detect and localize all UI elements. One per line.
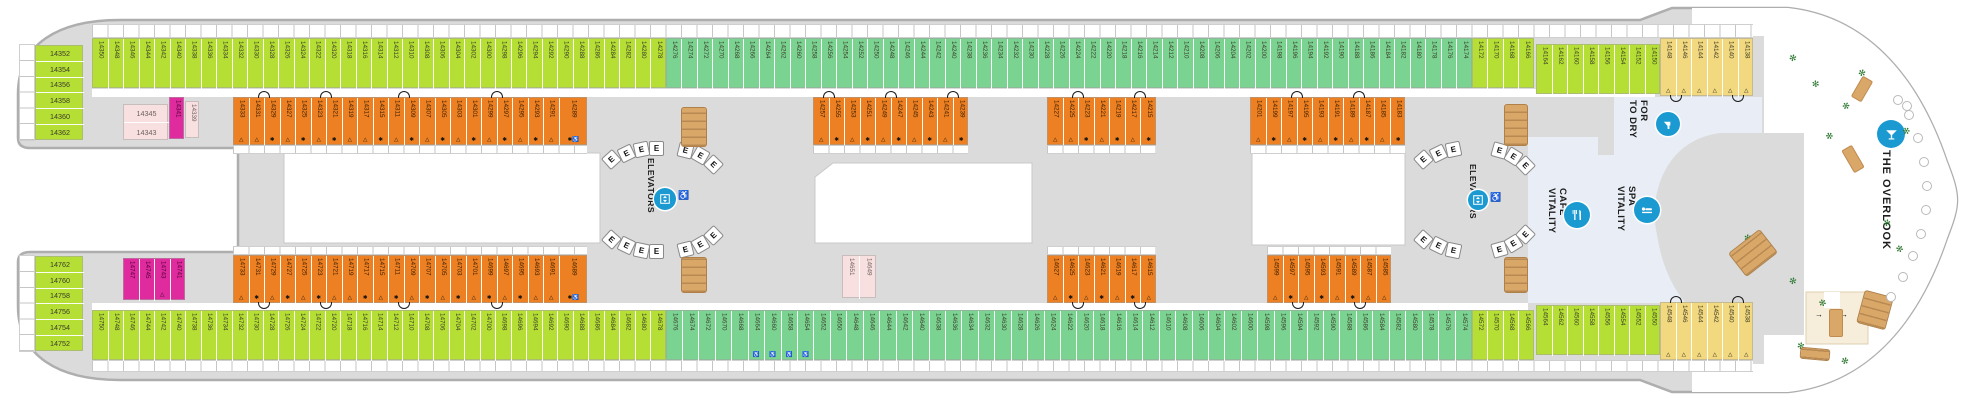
- cabin-14698[interactable]: 14698: [496, 311, 512, 361]
- cabin-14156[interactable]: 14156: [1599, 45, 1615, 95]
- cabin-14344[interactable]: 14344: [140, 39, 156, 89]
- cabin-14166[interactable]: 14166: [1519, 39, 1535, 89]
- cabin-14743[interactable]: 14743△: [155, 259, 171, 301]
- cabin-14326[interactable]: 14326: [279, 39, 295, 89]
- cabin-14286[interactable]: 14286: [589, 39, 605, 89]
- cabin-14193[interactable]: 14193△: [1313, 98, 1329, 146]
- cabin-14306[interactable]: 14306: [434, 39, 450, 89]
- cabin-14182[interactable]: 14182: [1395, 39, 1411, 89]
- cabin-14218[interactable]: 14218: [1116, 39, 1132, 89]
- cabin-14314[interactable]: 14314: [372, 39, 388, 89]
- stairs[interactable]: [681, 107, 707, 147]
- cabin-14732[interactable]: 14732: [233, 311, 249, 361]
- cabin-14268[interactable]: 14268: [729, 39, 745, 89]
- cabin-14254[interactable]: 14254: [837, 39, 853, 89]
- cabin-14350[interactable]: 14350: [93, 39, 109, 89]
- elevator-box[interactable]: E: [649, 244, 664, 259]
- cabin-14554[interactable]: 14554: [1615, 306, 1631, 356]
- cabin-14220[interactable]: 14220: [1101, 39, 1117, 89]
- cabin-14228[interactable]: 14228: [1039, 39, 1055, 89]
- cabin-14630[interactable]: 14630: [995, 311, 1011, 361]
- cabin-14158[interactable]: 14158: [1584, 45, 1600, 95]
- cabin-14234[interactable]: 14234: [992, 39, 1008, 89]
- cabin-14738[interactable]: 14738: [186, 311, 202, 361]
- cabin-14680[interactable]: 14680: [636, 311, 652, 361]
- stairs[interactable]: [1504, 257, 1528, 293]
- cabin-14724[interactable]: 14724: [295, 311, 311, 361]
- cabin-14245[interactable]: 14245△: [907, 98, 923, 146]
- cabin-14568[interactable]: 14568: [1504, 311, 1520, 361]
- cabin-14638[interactable]: 14638: [930, 311, 946, 361]
- cabin-14298[interactable]: 14298: [496, 39, 512, 89]
- cabin-14634[interactable]: 14634: [962, 311, 978, 361]
- cabin-14172[interactable]: 14172: [1473, 39, 1489, 89]
- cabin-14336[interactable]: 14336: [202, 39, 218, 89]
- cabin-14348[interactable]: 14348: [109, 39, 125, 89]
- cabin-14674[interactable]: 14674: [683, 311, 699, 361]
- elevator-box[interactable]: E: [633, 242, 651, 260]
- cabin-14280[interactable]: 14280: [636, 39, 652, 89]
- elevator-box[interactable]: E: [633, 141, 651, 159]
- cabin-14682[interactable]: 14682: [620, 311, 636, 361]
- cabin-14695[interactable]: 14695✱: [513, 256, 529, 304]
- cabin-14538[interactable]: 14538△: [1739, 303, 1755, 361]
- cabin-14296[interactable]: 14296: [512, 39, 528, 89]
- cabin-14636[interactable]: 14636: [946, 311, 962, 361]
- cabin-14705[interactable]: 14705△: [436, 256, 452, 304]
- cabin-14305[interactable]: 14305✱: [436, 98, 452, 146]
- cabin-14192[interactable]: 14192: [1318, 39, 1334, 89]
- cabin-14190[interactable]: 14190: [1333, 39, 1349, 89]
- cabin-14658[interactable]: 14658♿: [782, 311, 798, 361]
- vitality-spa-label[interactable]: VITALITY SPA: [1615, 186, 1636, 256]
- cabin-14194[interactable]: 14194: [1302, 39, 1318, 89]
- cabin-14266[interactable]: 14266: [744, 39, 760, 89]
- cabin-14688[interactable]: 14688: [574, 311, 590, 361]
- cabin-14701[interactable]: 14701△: [467, 256, 483, 304]
- cabin-14570[interactable]: 14570: [1488, 311, 1504, 361]
- cabin-14556[interactable]: 14556: [1599, 306, 1615, 356]
- cabin-14696[interactable]: 14696: [512, 311, 528, 361]
- cabin-14748[interactable]: 14748: [109, 311, 125, 361]
- cabin-14692[interactable]: 14692: [543, 311, 559, 361]
- cabin-14150[interactable]: 14150: [1646, 45, 1662, 95]
- cabin-14616[interactable]: 14616: [1110, 311, 1126, 361]
- cabin-14723[interactable]: 14723✱: [312, 256, 328, 304]
- cabin-14187[interactable]: 14187✱: [1360, 98, 1376, 146]
- cabin-14640[interactable]: 14640: [913, 311, 929, 361]
- cabin-14689[interactable]: 14689✱♿: [560, 256, 588, 304]
- cabin-14566[interactable]: 14566: [1519, 311, 1535, 361]
- stairs[interactable]: [681, 257, 707, 293]
- cabin-14590[interactable]: 14590: [1324, 311, 1340, 361]
- cabin-14620[interactable]: 14620: [1077, 311, 1093, 361]
- cabin-14550[interactable]: 14550: [1646, 306, 1662, 356]
- cabin-14564[interactable]: 14564: [1537, 306, 1553, 356]
- cabin-14224[interactable]: 14224: [1070, 39, 1086, 89]
- cabin-14584[interactable]: 14584: [1373, 311, 1389, 361]
- cabin-14327[interactable]: 14327△: [281, 98, 297, 146]
- cabin-14264[interactable]: 14264: [760, 39, 776, 89]
- cabin-14760[interactable]: 14760: [36, 273, 84, 289]
- cabin-14621[interactable]: 14621✱: [1095, 256, 1111, 304]
- cabin-14700[interactable]: 14700: [481, 311, 497, 361]
- cabin-14614[interactable]: 14614: [1127, 311, 1143, 361]
- cabin-14330[interactable]: 14330: [248, 39, 264, 89]
- cabin-14184[interactable]: 14184: [1380, 39, 1396, 89]
- cabin-14226[interactable]: 14226: [1054, 39, 1070, 89]
- cabin-14315[interactable]: 14315✱: [374, 98, 390, 146]
- cabin-14707[interactable]: 14707✱: [420, 256, 436, 304]
- to-dry-for-label[interactable]: TO DRY FOR: [1627, 100, 1648, 164]
- cabin-14754[interactable]: 14754: [36, 320, 84, 336]
- cabin-14652[interactable]: 14652: [814, 311, 830, 361]
- cabin-14258[interactable]: 14258: [806, 39, 822, 89]
- cabin-14183[interactable]: 14183✱: [1391, 98, 1407, 146]
- cabin-14706[interactable]: 14706: [434, 311, 450, 361]
- cabin-14250[interactable]: 14250: [868, 39, 884, 89]
- cabin-14316[interactable]: 14316: [357, 39, 373, 89]
- cabin-14282[interactable]: 14282: [620, 39, 636, 89]
- cabin-14324[interactable]: 14324: [295, 39, 311, 89]
- cabin-14154[interactable]: 14154: [1615, 45, 1631, 95]
- cabin-14562[interactable]: 14562: [1553, 306, 1569, 356]
- cabin-14223[interactable]: 14223✱: [1079, 98, 1095, 146]
- cabin-14260[interactable]: 14260: [791, 39, 807, 89]
- cabin-14310[interactable]: 14310: [403, 39, 419, 89]
- cabin-14343[interactable]: 14343: [124, 123, 169, 141]
- cabin-14247[interactable]: 14247✱: [892, 98, 908, 146]
- cabin-14702[interactable]: 14702: [465, 311, 481, 361]
- cabin-14699[interactable]: 14699✱: [482, 256, 498, 304]
- cabin-14622[interactable]: 14622: [1061, 311, 1077, 361]
- cabin-14586[interactable]: 14586: [1357, 311, 1373, 361]
- cabin-14596[interactable]: 14596: [1275, 311, 1291, 361]
- cabin-14651[interactable]: 14651: [843, 256, 860, 299]
- cabin-14726[interactable]: 14726: [279, 311, 295, 361]
- cabin-14299[interactable]: 14299△: [482, 98, 498, 146]
- cabin-14585[interactable]: 14585△: [1377, 256, 1393, 304]
- cabin-14592[interactable]: 14592: [1308, 311, 1324, 361]
- cabin-14332[interactable]: 14332: [233, 39, 249, 89]
- cabin-14542[interactable]: 14542△: [1708, 303, 1724, 361]
- cabin-14546[interactable]: 14546△: [1677, 303, 1693, 361]
- cabin-14262[interactable]: 14262: [775, 39, 791, 89]
- cabin-14660[interactable]: 14660♿: [765, 311, 781, 361]
- cabin-14618[interactable]: 14618: [1094, 311, 1110, 361]
- cabin-14201[interactable]: 14201△: [1251, 98, 1267, 146]
- cabin-14248[interactable]: 14248: [884, 39, 900, 89]
- cabin-14747[interactable]: 14747: [124, 259, 140, 301]
- cabin-14719[interactable]: 14719△: [343, 256, 359, 304]
- cabin-14162[interactable]: 14162: [1553, 45, 1569, 95]
- cabin-14174[interactable]: 14174: [1457, 39, 1473, 89]
- cabin-14191[interactable]: 14191✱: [1329, 98, 1345, 146]
- cabin-14301[interactable]: 14301✱: [467, 98, 483, 146]
- cabin-14249[interactable]: 14249△: [876, 98, 892, 146]
- cabin-14142[interactable]: 14142△: [1708, 39, 1724, 97]
- cabin-14745[interactable]: 14745: [140, 259, 156, 301]
- cabin-14196[interactable]: 14196: [1287, 39, 1303, 89]
- cabin-14731[interactable]: 14731✱: [250, 256, 266, 304]
- cabin-14319[interactable]: 14319△: [343, 98, 359, 146]
- cabin-14225[interactable]: 14225△: [1064, 98, 1080, 146]
- cabin-14758[interactable]: 14758: [36, 289, 84, 305]
- cabin-14198[interactable]: 14198: [1271, 39, 1287, 89]
- cabin-14544[interactable]: 14544△: [1692, 303, 1708, 361]
- cabin-14274[interactable]: 14274: [682, 39, 698, 89]
- cabin-14712[interactable]: 14712: [388, 311, 404, 361]
- cabin-14588[interactable]: 14588: [1340, 311, 1356, 361]
- cabin-14168[interactable]: 14168: [1504, 39, 1520, 89]
- cabin-14668[interactable]: 14668: [732, 311, 748, 361]
- cabin-14140[interactable]: 14140△: [1723, 39, 1739, 97]
- cabin-14188[interactable]: 14188: [1349, 39, 1365, 89]
- cabin-14257[interactable]: 14257△: [814, 98, 830, 146]
- cabin-14164[interactable]: 14164: [1537, 45, 1553, 95]
- cabin-14597[interactable]: 14597✱: [1284, 256, 1300, 304]
- cabin-14670[interactable]: 14670: [716, 311, 732, 361]
- cabin-14646[interactable]: 14646: [864, 311, 880, 361]
- cabin-14180[interactable]: 14180: [1411, 39, 1427, 89]
- cabin-14626[interactable]: 14626: [1028, 311, 1044, 361]
- cabin-14721[interactable]: 14721△: [327, 256, 343, 304]
- cabin-14736[interactable]: 14736: [202, 311, 218, 361]
- cabin-14594[interactable]: 14594: [1291, 311, 1307, 361]
- cabin-14272[interactable]: 14272: [698, 39, 714, 89]
- cabin-14216[interactable]: 14216: [1132, 39, 1148, 89]
- cabin-14307[interactable]: 14307△: [420, 98, 436, 146]
- cabin-14752[interactable]: 14752: [36, 336, 84, 352]
- cabin-14742[interactable]: 14742: [155, 311, 171, 361]
- cabin-14222[interactable]: 14222: [1085, 39, 1101, 89]
- cabin-14321[interactable]: 14321✱: [327, 98, 343, 146]
- cabin-14725[interactable]: 14725△: [296, 256, 312, 304]
- cabin-14672[interactable]: 14672: [699, 311, 715, 361]
- cabin-14714[interactable]: 14714: [372, 311, 388, 361]
- cabin-14302[interactable]: 14302: [465, 39, 481, 89]
- cabin-14599[interactable]: 14599△: [1268, 256, 1284, 304]
- cabin-14360[interactable]: 14360: [36, 109, 84, 125]
- cabin-14715[interactable]: 14715△: [374, 256, 390, 304]
- cabin-14208[interactable]: 14208: [1194, 39, 1210, 89]
- cabin-14333[interactable]: 14333△: [234, 98, 250, 146]
- elevator-box[interactable]: E: [1445, 141, 1463, 159]
- cabin-14138[interactable]: 14138△: [1739, 39, 1755, 97]
- cabin-14625[interactable]: 14625✱: [1064, 256, 1080, 304]
- cabin-14354[interactable]: 14354: [36, 62, 84, 78]
- cabin-14345[interactable]: 14345: [124, 105, 169, 123]
- cabin-14720[interactable]: 14720: [326, 311, 342, 361]
- cabin-14252[interactable]: 14252: [853, 39, 869, 89]
- cabin-14251[interactable]: 14251✱: [861, 98, 877, 146]
- cabin-14710[interactable]: 14710: [403, 311, 419, 361]
- cabin-14323[interactable]: 14323△: [312, 98, 328, 146]
- cabin-14329[interactable]: 14329✱: [265, 98, 281, 146]
- cabin-14236[interactable]: 14236: [977, 39, 993, 89]
- cabin-14604[interactable]: 14604: [1209, 311, 1225, 361]
- cabin-14221[interactable]: 14221△: [1095, 98, 1111, 146]
- cabin-14716[interactable]: 14716: [357, 311, 373, 361]
- cabin-14242[interactable]: 14242: [930, 39, 946, 89]
- cabin-14591[interactable]: 14591△: [1330, 256, 1346, 304]
- cabin-14144[interactable]: 14144△: [1692, 39, 1708, 97]
- cabin-14255[interactable]: 14255✱: [830, 98, 846, 146]
- cabin-14733[interactable]: 14733△: [234, 256, 250, 304]
- cabin-14253[interactable]: 14253△: [845, 98, 861, 146]
- cabin-14341[interactable]: 14341: [170, 98, 185, 140]
- stairs[interactable]: [1504, 104, 1528, 146]
- cabin-14256[interactable]: 14256: [822, 39, 838, 89]
- cabin-14740[interactable]: 14740: [171, 311, 187, 361]
- cabin-14587[interactable]: 14587△: [1361, 256, 1377, 304]
- cabin-14195[interactable]: 14195✱: [1298, 98, 1314, 146]
- cabin-14243[interactable]: 14243✱: [923, 98, 939, 146]
- cabin-14644[interactable]: 14644: [880, 311, 896, 361]
- cabin-14300[interactable]: 14300: [481, 39, 497, 89]
- cabin-14548[interactable]: 14548△: [1661, 303, 1677, 361]
- cabin-14295[interactable]: 14295△: [513, 98, 529, 146]
- cabin-14311[interactable]: 14311△: [389, 98, 405, 146]
- cabin-14552[interactable]: 14552: [1630, 306, 1646, 356]
- cabin-14178[interactable]: 14178: [1426, 39, 1442, 89]
- cabin-14210[interactable]: 14210: [1178, 39, 1194, 89]
- cabin-14598[interactable]: 14598: [1258, 311, 1274, 361]
- cabin-14684[interactable]: 14684: [605, 311, 621, 361]
- cabin-14199[interactable]: 14199✱: [1267, 98, 1283, 146]
- cabin-14297[interactable]: 14297✱: [498, 98, 514, 146]
- cabin-14558[interactable]: 14558: [1584, 306, 1600, 356]
- cabin-14289[interactable]: 14289✱♿: [560, 98, 588, 146]
- cabin-14582[interactable]: 14582: [1390, 311, 1406, 361]
- cabin-14244[interactable]: 14244: [915, 39, 931, 89]
- cabin-14290[interactable]: 14290: [558, 39, 574, 89]
- cabin-14331[interactable]: 14331△: [250, 98, 266, 146]
- cabin-14202[interactable]: 14202: [1240, 39, 1256, 89]
- cabin-14730[interactable]: 14730: [248, 311, 264, 361]
- cabin-14304[interactable]: 14304: [450, 39, 466, 89]
- cabin-14212[interactable]: 14212: [1163, 39, 1179, 89]
- cabin-14318[interactable]: 14318: [341, 39, 357, 89]
- cabin-14338[interactable]: 14338: [186, 39, 202, 89]
- cabin-14270[interactable]: 14270: [713, 39, 729, 89]
- cabin-14303[interactable]: 14303△: [451, 98, 467, 146]
- cabin-14694[interactable]: 14694: [527, 311, 543, 361]
- cabin-14703[interactable]: 14703✱: [451, 256, 467, 304]
- cabin-14606[interactable]: 14606: [1193, 311, 1209, 361]
- cabin-14697[interactable]: 14697△: [498, 256, 514, 304]
- cabin-14227[interactable]: 14227△: [1048, 98, 1064, 146]
- cabin-14320[interactable]: 14320: [326, 39, 342, 89]
- cabin-14580[interactable]: 14580: [1406, 311, 1422, 361]
- cabin-14727[interactable]: 14727✱: [281, 256, 297, 304]
- cabin-14278[interactable]: 14278: [651, 39, 667, 89]
- cabin-14146[interactable]: 14146△: [1677, 39, 1693, 97]
- cabin-14649[interactable]: 14649: [860, 256, 877, 299]
- cabin-14189[interactable]: 14189△: [1344, 98, 1360, 146]
- cabin-14718[interactable]: 14718: [341, 311, 357, 361]
- cabin-14276[interactable]: 14276: [667, 39, 683, 89]
- cabin-14709[interactable]: 14709△: [405, 256, 421, 304]
- cabin-14358[interactable]: 14358: [36, 93, 84, 109]
- cabin-14664[interactable]: 14664♿: [749, 311, 765, 361]
- cabin-14642[interactable]: 14642: [897, 311, 913, 361]
- cabin-14292[interactable]: 14292: [543, 39, 559, 89]
- cabin-14560[interactable]: 14560: [1568, 306, 1584, 356]
- cabin-14322[interactable]: 14322: [310, 39, 326, 89]
- cabin-14339[interactable]: 14339: [186, 102, 200, 139]
- cabin-14686[interactable]: 14686: [589, 311, 605, 361]
- cabin-14654[interactable]: 14654♿: [798, 311, 814, 361]
- cabin-14340[interactable]: 14340: [171, 39, 187, 89]
- cabin-14610[interactable]: 14610: [1160, 311, 1176, 361]
- cabin-14325[interactable]: 14325✱: [296, 98, 312, 146]
- cabin-14241[interactable]: 14241△: [938, 98, 954, 146]
- cabin-14291[interactable]: 14291△: [544, 98, 560, 146]
- cabin-14312[interactable]: 14312: [388, 39, 404, 89]
- cabin-14346[interactable]: 14346: [124, 39, 140, 89]
- cabin-14612[interactable]: 14612: [1143, 311, 1159, 361]
- cabin-14729[interactable]: 14729△: [265, 256, 281, 304]
- cabin-14197[interactable]: 14197△: [1282, 98, 1298, 146]
- cabin-14246[interactable]: 14246: [899, 39, 915, 89]
- cabin-14293[interactable]: 14293✱: [529, 98, 545, 146]
- cabin-14362[interactable]: 14362: [36, 125, 84, 141]
- cabin-14160[interactable]: 14160: [1568, 45, 1584, 95]
- cabin-14214[interactable]: 14214: [1147, 39, 1163, 89]
- cabin-14152[interactable]: 14152: [1630, 45, 1646, 95]
- elevator-box[interactable]: E: [1445, 242, 1463, 260]
- cabin-14617[interactable]: 14617✱: [1126, 256, 1142, 304]
- cabin-14185[interactable]: 14185△: [1375, 98, 1391, 146]
- vitality-cafe-label[interactable]: VITALITY CAFE: [1546, 188, 1567, 258]
- cabin-14176[interactable]: 14176: [1442, 39, 1458, 89]
- cabin-14750[interactable]: 14750: [93, 311, 109, 361]
- cabin-14328[interactable]: 14328: [264, 39, 280, 89]
- cabin-14648[interactable]: 14648: [847, 311, 863, 361]
- cabin-14317[interactable]: 14317△: [358, 98, 374, 146]
- cabin-14574[interactable]: 14574: [1456, 311, 1472, 361]
- cabin-14722[interactable]: 14722: [310, 311, 326, 361]
- cabin-14756[interactable]: 14756: [36, 304, 84, 320]
- cabin-14219[interactable]: 14219✱: [1110, 98, 1126, 146]
- cabin-14623[interactable]: 14623△: [1079, 256, 1095, 304]
- cabin-14650[interactable]: 14650: [831, 311, 847, 361]
- cabin-14711[interactable]: 14711✱: [389, 256, 405, 304]
- cabin-14294[interactable]: 14294: [527, 39, 543, 89]
- cabin-14632[interactable]: 14632: [979, 311, 995, 361]
- cabin-14627[interactable]: 14627△: [1048, 256, 1064, 304]
- cabin-14619[interactable]: 14619△: [1110, 256, 1126, 304]
- cabin-14595[interactable]: 14595△: [1299, 256, 1315, 304]
- cabin-14704[interactable]: 14704: [450, 311, 466, 361]
- cabin-14708[interactable]: 14708: [419, 311, 435, 361]
- cabin-14693[interactable]: 14693△: [529, 256, 545, 304]
- cabin-14576[interactable]: 14576: [1439, 311, 1455, 361]
- cabin-14148[interactable]: 14148△: [1661, 39, 1677, 97]
- cabin-14204[interactable]: 14204: [1225, 39, 1241, 89]
- cabin-14746[interactable]: 14746: [124, 311, 140, 361]
- cabin-14232[interactable]: 14232: [1008, 39, 1024, 89]
- cabin-14238[interactable]: 14238: [961, 39, 977, 89]
- cabin-14239[interactable]: 14239✱: [954, 98, 970, 146]
- elevator-box[interactable]: E: [649, 141, 664, 156]
- cabin-14308[interactable]: 14308: [419, 39, 435, 89]
- cabin-14206[interactable]: 14206: [1209, 39, 1225, 89]
- cabin-14628[interactable]: 14628: [1012, 311, 1028, 361]
- cabin-14624[interactable]: 14624: [1045, 311, 1061, 361]
- cabin-14734[interactable]: 14734: [217, 311, 233, 361]
